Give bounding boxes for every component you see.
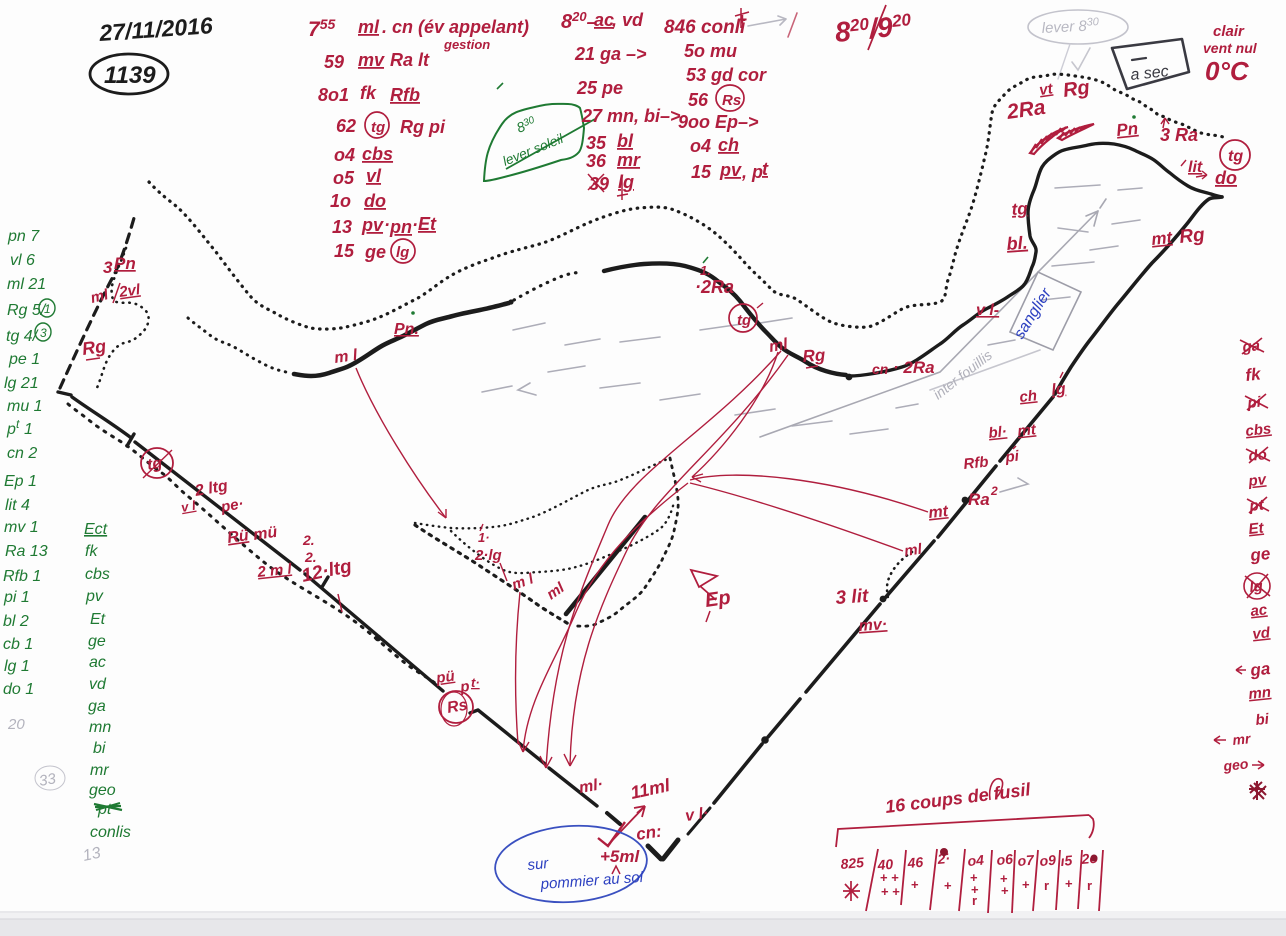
svg-text:+5ml: +5ml	[600, 847, 640, 866]
svg-text:tg: tg	[737, 312, 751, 329]
svg-text:mv·: mv·	[858, 616, 888, 635]
svg-text:0°C: 0°C	[1205, 56, 1250, 86]
svg-text:3: 3	[40, 326, 47, 340]
svg-text:Rfb: Rfb	[390, 85, 420, 105]
svg-text:pi: pi	[1004, 448, 1021, 466]
svg-text:r: r	[972, 893, 977, 908]
svg-text:mu 1: mu 1	[7, 398, 43, 415]
svg-text:pü: pü	[434, 668, 456, 688]
svg-text:Rfb 1: Rfb 1	[3, 568, 41, 585]
svg-text:Pn: Pn	[1115, 119, 1139, 140]
svg-text:tg: tg	[146, 455, 164, 474]
svg-text:Ep 1: Ep 1	[4, 473, 37, 490]
svg-text:bl 2: bl 2	[3, 613, 29, 630]
svg-text:lg 21: lg 21	[4, 375, 39, 392]
svg-text:pv: pv	[1247, 471, 1269, 490]
svg-text:m l: m l	[333, 347, 359, 367]
svg-text:cn:: cn:	[635, 822, 663, 844]
svg-text:fk: fk	[360, 83, 377, 103]
svg-text:+: +	[911, 877, 919, 892]
svg-text:, p: , p	[741, 162, 763, 182]
svg-text:o9: o9	[1039, 852, 1057, 869]
svg-text:tg 4/: tg 4/	[6, 328, 39, 345]
svg-text:mv 1: mv 1	[4, 519, 39, 536]
svg-text:1·: 1·	[478, 530, 490, 545]
svg-text:2.: 2.	[302, 532, 315, 548]
svg-text:39: 39	[589, 174, 609, 194]
svg-text:35: 35	[586, 133, 607, 153]
svg-text:tg: tg	[371, 119, 385, 136]
svg-text:lg: lg	[396, 244, 409, 261]
svg-text:do: do	[1215, 168, 1237, 188]
svg-text:· 2Ra: · 2Ra	[893, 358, 935, 377]
svg-text:62: 62	[336, 116, 356, 136]
svg-text:sur: sur	[527, 855, 550, 874]
svg-text:20: 20	[7, 716, 25, 733]
svg-text:lg: lg	[1051, 381, 1067, 399]
svg-text:cn: cn	[872, 361, 888, 377]
svg-text:ac: ac	[89, 654, 106, 671]
svg-text:vd: vd	[1252, 624, 1272, 643]
svg-text:pv: pv	[85, 588, 104, 605]
svg-text:59: 59	[324, 52, 344, 72]
svg-text:pv: pv	[361, 215, 384, 235]
svg-text:5o mu: 5o mu	[684, 41, 737, 61]
svg-text:1o: 1o	[330, 191, 351, 211]
svg-text:ga: ga	[88, 698, 106, 715]
svg-text:o5: o5	[333, 168, 355, 188]
svg-text:Rg 5/: Rg 5/	[7, 302, 47, 319]
svg-text:mr: mr	[90, 762, 109, 779]
svg-text:8o1: 8o1	[318, 85, 349, 105]
svg-text:geo: geo	[1222, 755, 1250, 774]
svg-text:pn 7: pn 7	[7, 228, 40, 245]
svg-text:Ra: Ra	[968, 490, 990, 509]
svg-text:mt: mt	[928, 503, 950, 522]
svg-text:15: 15	[334, 241, 355, 261]
svg-text:2vl: 2vl	[117, 281, 142, 301]
svg-text:21 ga –>: 21 ga –>	[574, 44, 647, 64]
svg-text:3: 3	[103, 258, 113, 277]
svg-text:vent nul: vent nul	[1203, 40, 1258, 56]
svg-text:o4: o4	[967, 852, 985, 869]
svg-text:. cn (év appelant): . cn (év appelant)	[382, 17, 529, 37]
svg-text:ac: ac	[1250, 601, 1269, 620]
svg-text:lg 1: lg 1	[4, 658, 30, 675]
svg-text:v l-: v l-	[976, 302, 999, 319]
svg-text:Pn.: Pn.	[394, 321, 419, 338]
svg-text:mn: mn	[1248, 684, 1272, 703]
svg-text:bl.: bl.	[1006, 233, 1028, 254]
svg-text:13: 13	[81, 845, 102, 865]
svg-text:pi 1: pi 1	[3, 589, 30, 606]
svg-text:1: 1	[44, 302, 51, 316]
svg-text:v l: v l	[180, 498, 197, 515]
svg-text:r: r	[1087, 878, 1092, 893]
svg-text:ı5: ı5	[1060, 852, 1073, 869]
svg-text:bi: bi	[93, 740, 106, 757]
svg-text:mt: mt	[1150, 228, 1174, 249]
svg-text:+ +: + +	[880, 870, 899, 885]
svg-text:846 conli: 846 conli	[664, 17, 746, 38]
svg-text:Ep: Ep	[704, 587, 732, 612]
svg-text:+: +	[1022, 877, 1030, 892]
svg-text:Et: Et	[90, 611, 106, 628]
svg-text:1: 1	[24, 421, 33, 438]
svg-text:lit: lit	[1188, 159, 1203, 176]
svg-text:·2Ra: ·2Ra	[695, 277, 734, 297]
svg-text:27 mn, bi–>: 27 mn, bi–>	[581, 106, 681, 126]
svg-text:fk: fk	[85, 543, 98, 560]
svg-text:tg: tg	[1228, 148, 1243, 165]
svg-text:+: +	[944, 878, 952, 893]
svg-text:53 gd cor: 53 gd cor	[686, 65, 767, 85]
svg-text:vd: vd	[89, 676, 107, 693]
svg-text:56: 56	[688, 90, 709, 110]
svg-text:pn: pn	[389, 217, 412, 237]
svg-text:Rg: Rg	[802, 345, 827, 366]
svg-text:ml: ml	[903, 541, 924, 560]
svg-text:Et: Et	[418, 214, 437, 234]
svg-text:3 lit: 3 lit	[835, 586, 870, 609]
svg-text:geo: geo	[89, 782, 116, 799]
svg-text:r: r	[1044, 878, 1049, 893]
svg-text:cbs: cbs	[1245, 420, 1272, 440]
svg-text:3 Ra: 3 Ra	[1160, 125, 1198, 145]
svg-text:+ +: + +	[881, 884, 900, 899]
svg-text:o4: o4	[334, 145, 355, 165]
svg-text:Rü: Rü	[226, 527, 250, 547]
svg-text:lit 4: lit 4	[5, 497, 30, 514]
svg-text:2: 2	[990, 484, 998, 498]
svg-text:mn: mn	[89, 719, 111, 736]
svg-text:Ra 13: Ra 13	[5, 543, 48, 560]
svg-text:46: 46	[906, 854, 924, 871]
svg-text:vl: vl	[366, 166, 382, 186]
svg-text:pv: pv	[719, 160, 742, 180]
svg-text:Rg pi: Rg pi	[400, 117, 446, 137]
svg-text:1139: 1139	[104, 62, 156, 89]
svg-text:lg: lg	[618, 172, 634, 192]
svg-text:+: +	[1001, 883, 1009, 898]
svg-text:gestion: gestion	[443, 37, 490, 52]
svg-text:vl 6: vl 6	[10, 252, 35, 269]
svg-text:ch: ch	[718, 135, 739, 155]
svg-text:mü: mü	[252, 524, 278, 544]
svg-text:Rg: Rg	[81, 336, 108, 359]
svg-text:pe 1: pe 1	[8, 351, 40, 368]
svg-text:ch: ch	[1019, 387, 1038, 406]
svg-text:13: 13	[332, 217, 352, 237]
svg-text:ge: ge	[88, 633, 106, 650]
svg-text:Rg: Rg	[1178, 224, 1206, 248]
svg-text:cn 2: cn 2	[7, 445, 37, 462]
svg-text:ml: ml	[358, 17, 380, 37]
svg-text:bl·: bl·	[988, 423, 1008, 442]
svg-text:mt: mt	[1017, 421, 1038, 440]
svg-text:cbs: cbs	[362, 144, 393, 164]
svg-text:t: t	[762, 159, 769, 179]
svg-text:p: p	[6, 421, 16, 438]
svg-text:mv: mv	[358, 50, 385, 70]
svg-text:tg: tg	[1011, 199, 1029, 219]
svg-text:ge: ge	[1248, 544, 1271, 565]
svg-text:, vd: , vd	[611, 10, 644, 30]
svg-text:Rs: Rs	[722, 92, 741, 109]
svg-text:do 1: do 1	[3, 681, 34, 698]
svg-text:Et: Et	[1248, 519, 1266, 538]
svg-text:cb 1: cb 1	[3, 636, 33, 653]
svg-text:Rg: Rg	[1062, 76, 1091, 101]
svg-text:1.: 1.	[700, 263, 711, 278]
svg-text:mr: mr	[1232, 730, 1253, 748]
svg-text:o7: o7	[1017, 852, 1036, 869]
svg-text:o6: o6	[996, 851, 1014, 868]
svg-text:cbs: cbs	[85, 566, 110, 583]
svg-text:825: 825	[840, 854, 865, 872]
svg-text:v l·: v l·	[684, 805, 709, 825]
svg-text:mr: mr	[617, 150, 641, 170]
svg-text:ge: ge	[364, 242, 386, 262]
svg-text:do: do	[364, 191, 386, 211]
svg-text:Ect: Ect	[84, 521, 108, 538]
svg-text:36: 36	[586, 151, 607, 171]
svg-text:9oo Ep–>: 9oo Ep–>	[678, 112, 759, 132]
svg-text:Pn: Pn	[114, 254, 136, 273]
svg-text:bl: bl	[617, 131, 634, 151]
svg-text:ml 21: ml 21	[7, 276, 46, 293]
svg-text:Rfb: Rfb	[963, 453, 990, 473]
svg-text:25 pe: 25 pe	[576, 78, 623, 98]
svg-text:ga: ga	[1248, 659, 1271, 680]
svg-text:bi: bi	[1255, 711, 1271, 729]
svg-text:Ra lt: Ra lt	[390, 50, 430, 70]
svg-text:15: 15	[691, 162, 712, 182]
svg-text:2·lg: 2·lg	[474, 547, 502, 564]
svg-text:t·: t·	[471, 675, 480, 690]
svg-text:+: +	[1065, 876, 1073, 891]
svg-text:o4: o4	[690, 136, 711, 156]
svg-text:clair: clair	[1213, 23, 1245, 40]
svg-text:conlis: conlis	[90, 824, 131, 841]
